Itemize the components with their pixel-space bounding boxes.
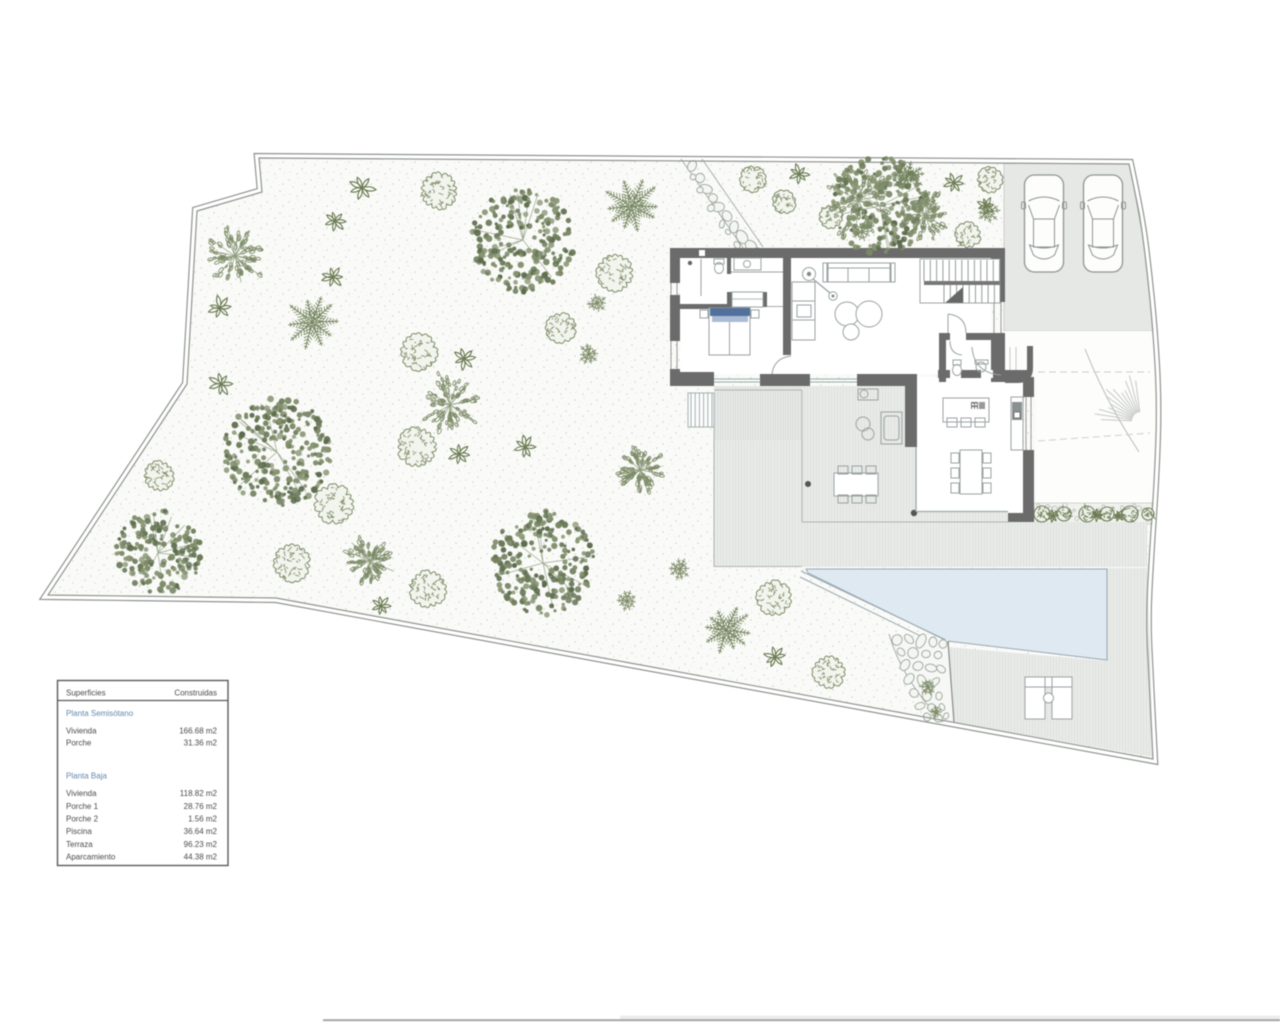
svg-text:Planta Baja: Planta Baja (66, 772, 107, 781)
svg-text:1.56 m2: 1.56 m2 (188, 814, 217, 823)
svg-text:31.36 m2: 31.36 m2 (184, 738, 218, 747)
svg-text:Terraza: Terraza (66, 840, 93, 849)
svg-text:36.64 m2: 36.64 m2 (184, 827, 218, 836)
svg-text:44.38 m2: 44.38 m2 (184, 853, 218, 862)
svg-text:Planta Semisótano: Planta Semisótano (66, 709, 134, 718)
svg-text:Porche 1: Porche 1 (66, 802, 99, 811)
svg-text:118.82 m2: 118.82 m2 (180, 789, 218, 798)
svg-text:Piscina: Piscina (66, 827, 92, 836)
svg-text:Aparcamiento: Aparcamiento (66, 853, 116, 862)
svg-text:Construidas: Construidas (174, 689, 217, 698)
svg-text:Superficies: Superficies (66, 689, 106, 698)
svg-text:Vivienda: Vivienda (66, 727, 97, 736)
svg-text:Porche: Porche (66, 738, 92, 747)
svg-text:96.23 m2: 96.23 m2 (184, 840, 218, 849)
svg-text:28.76 m2: 28.76 m2 (184, 802, 218, 811)
svg-text:Porche 2: Porche 2 (66, 814, 99, 823)
svg-text:Vivienda: Vivienda (66, 789, 97, 798)
svg-text:166.68 m2: 166.68 m2 (179, 727, 217, 736)
